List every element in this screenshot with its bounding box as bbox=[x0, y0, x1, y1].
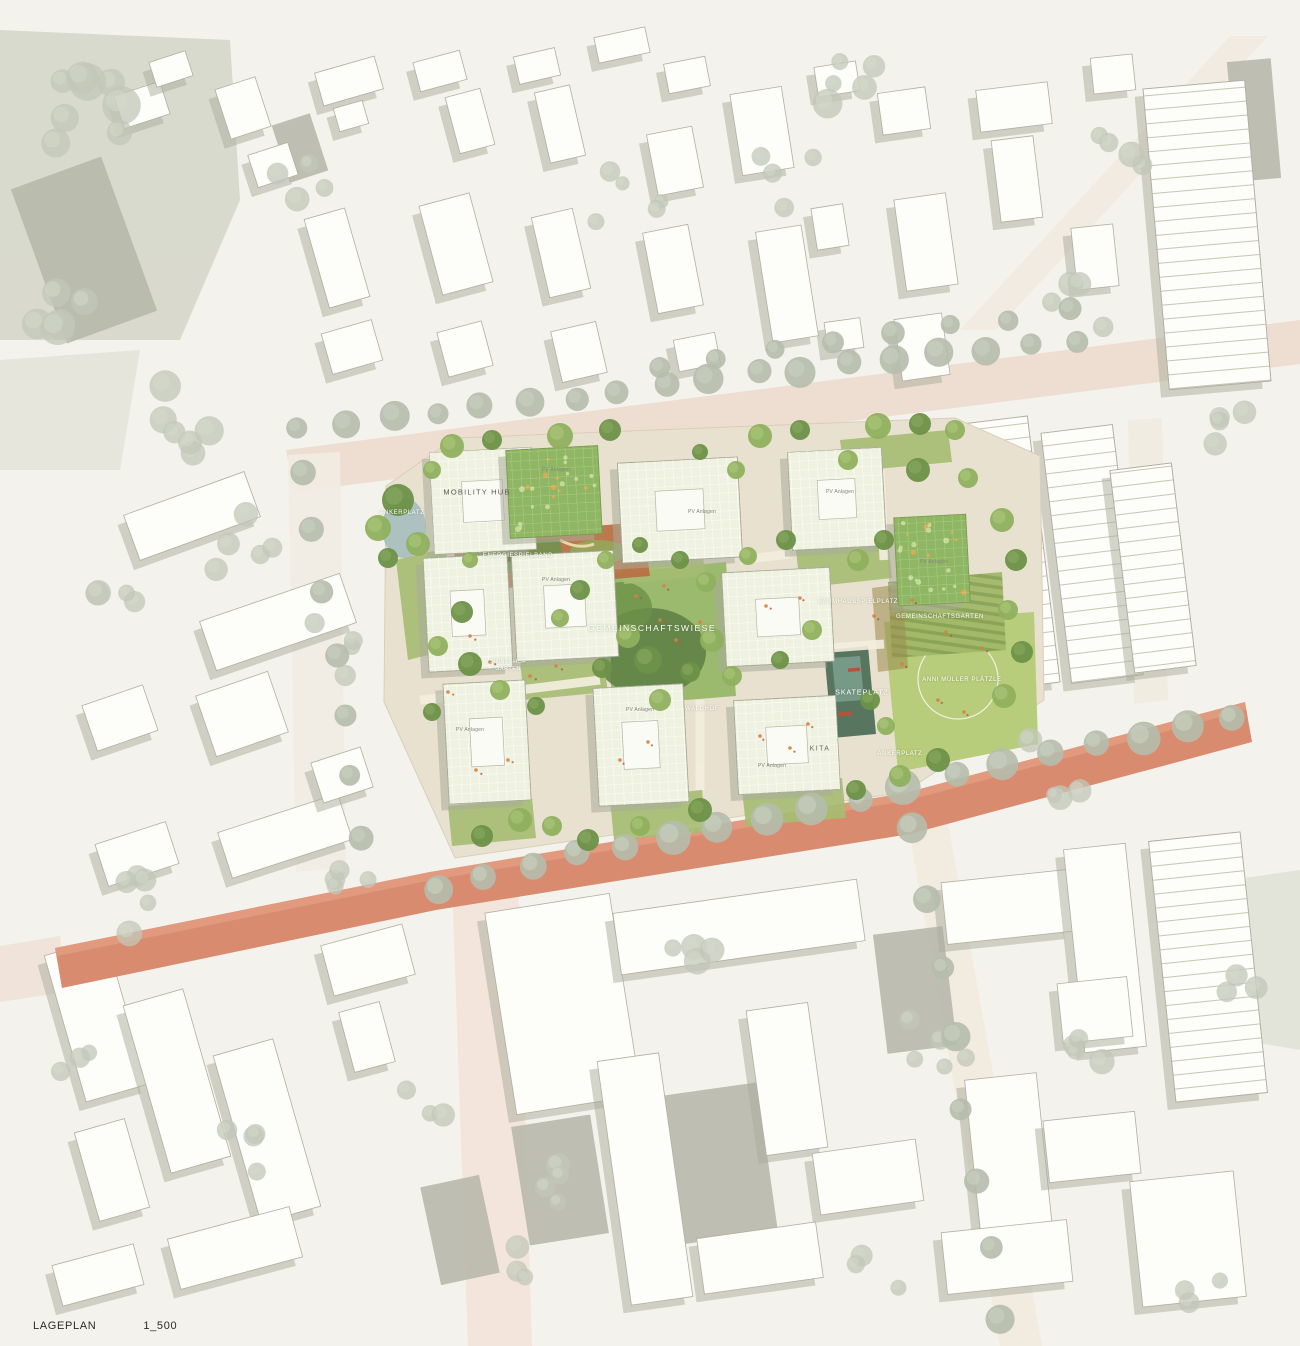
plan-title: LAGEPLAN bbox=[33, 1320, 96, 1332]
plan-scale: 1_500 bbox=[143, 1320, 177, 1332]
lageplan-canvas bbox=[0, 0, 1300, 1346]
plan-caption: LAGEPLAN1_500 bbox=[33, 1320, 177, 1332]
site-plan: ANKERPLATZMOBILITY HUBENERGIESPIELBANDSI… bbox=[0, 0, 1300, 1346]
